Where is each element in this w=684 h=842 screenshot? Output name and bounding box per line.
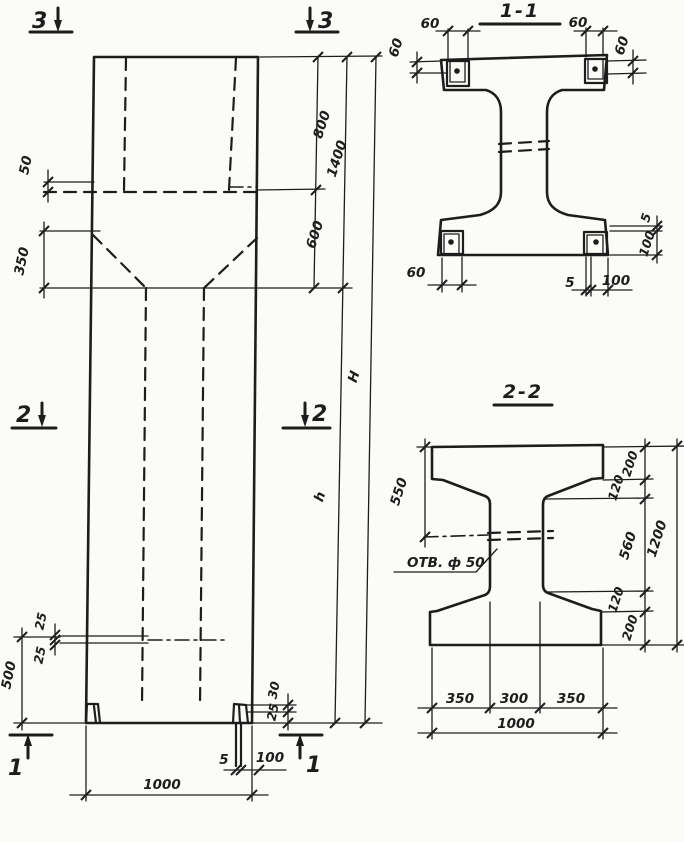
section-mark-1-right: 1 bbox=[280, 734, 322, 778]
hole-label: ОТВ. ф 50 bbox=[407, 555, 485, 571]
dim-25-tab: 25 bbox=[263, 702, 281, 722]
dim-1000-section: 1000 bbox=[497, 716, 535, 732]
dim-350: 350 bbox=[11, 246, 33, 277]
dim-1400: 1400 bbox=[324, 138, 351, 179]
dim-h-small: h bbox=[311, 490, 329, 504]
dim-120-bottom: 120 bbox=[605, 585, 627, 615]
drawing-sheet: 50 350 500 25 25 30 25 5 100 1000 bbox=[0, 0, 684, 842]
dim-60-top-left: 60 bbox=[421, 16, 440, 32]
elevation-view: 50 350 500 25 25 30 25 5 100 1000 bbox=[0, 8, 382, 801]
section-1-1-title: 1-1 bbox=[500, 0, 540, 22]
section-2-2-view: 2-2 ОТВ. ф 50 550 200 120 560 120 200 12… bbox=[387, 381, 684, 739]
svg-text:1: 1 bbox=[306, 753, 321, 778]
svg-text:2: 2 bbox=[312, 402, 327, 427]
svg-text:3: 3 bbox=[318, 9, 333, 34]
web-hidden-right bbox=[200, 288, 204, 706]
dim-30: 30 bbox=[264, 680, 282, 700]
svg-text:3: 3 bbox=[32, 9, 47, 34]
section-mark-2-right: 2 bbox=[283, 402, 330, 428]
dim-5-bottom: 5 bbox=[219, 752, 228, 768]
top-branch-hidden-left bbox=[124, 58, 126, 190]
corner-plate-bottom-left bbox=[441, 231, 463, 254]
shoulder-hidden-right bbox=[204, 238, 257, 288]
svg-text:2: 2 bbox=[16, 403, 31, 428]
dim-350-right: 350 bbox=[557, 691, 585, 707]
dim-300: 300 bbox=[500, 691, 528, 707]
dim-50: 50 bbox=[16, 154, 36, 176]
dim-200-bottom: 200 bbox=[619, 613, 641, 643]
dim-60-left-vert: 60 bbox=[386, 36, 407, 59]
dim-100-right-11: 100 bbox=[636, 229, 658, 259]
section-mark-3-left: 3 bbox=[30, 8, 72, 34]
dim-560: 560 bbox=[616, 530, 640, 562]
column-outline bbox=[86, 57, 258, 723]
shoulder-hidden-left bbox=[93, 235, 146, 288]
dim-60-bottom-left: 60 bbox=[407, 265, 426, 281]
corner-plate-top-left bbox=[447, 61, 469, 86]
dim-550: 550 bbox=[387, 476, 411, 508]
section-mark-2-left: 2 bbox=[12, 403, 56, 428]
dim-100-bottom-11: 100 bbox=[602, 273, 630, 289]
dim-1000-elevation: 1000 bbox=[143, 777, 181, 793]
dim-5-right-11: 5 bbox=[637, 211, 654, 224]
dim-350-left: 350 bbox=[446, 691, 474, 707]
dim-800: 800 bbox=[310, 109, 334, 141]
dim-60-right-vert: 60 bbox=[612, 34, 633, 57]
technical-drawing: 50 350 500 25 25 30 25 5 100 1000 bbox=[0, 0, 684, 842]
dim-25-lower: 25 bbox=[30, 645, 48, 665]
dim-200-top: 200 bbox=[619, 449, 641, 479]
svg-text:1: 1 bbox=[8, 756, 23, 781]
section-mark-1-left: 1 bbox=[8, 734, 52, 781]
dim-600: 600 bbox=[303, 219, 327, 251]
dim-1200: 1200 bbox=[644, 518, 671, 559]
dim-60-top-right: 60 bbox=[569, 15, 588, 31]
dim-5-bottom-11: 5 bbox=[565, 275, 574, 291]
dim-500: 500 bbox=[0, 660, 20, 691]
section-2-2-outline bbox=[430, 445, 603, 645]
section-1-1-view: 1-1 60 60 bbox=[386, 0, 662, 296]
dim-25-upper: 25 bbox=[31, 611, 49, 631]
dim-100-bottom: 100 bbox=[256, 750, 284, 766]
top-branch-hidden-right bbox=[229, 58, 236, 190]
dim-H-total: H bbox=[345, 368, 364, 384]
section-mark-3-right: 3 bbox=[296, 8, 338, 34]
section-2-2-title: 2-2 bbox=[503, 381, 543, 403]
corner-plate-bottom-right bbox=[584, 232, 607, 254]
